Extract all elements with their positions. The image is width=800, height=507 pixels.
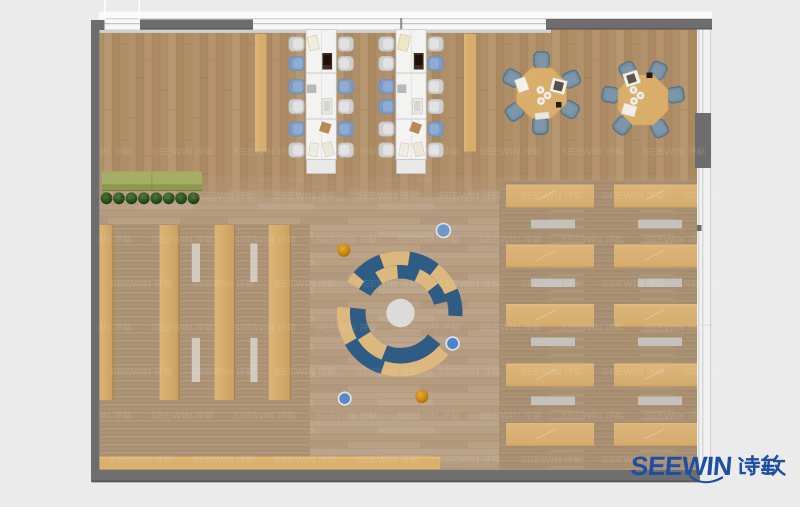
svg-text:SEEWIN: SEEWIN (629, 451, 733, 481)
